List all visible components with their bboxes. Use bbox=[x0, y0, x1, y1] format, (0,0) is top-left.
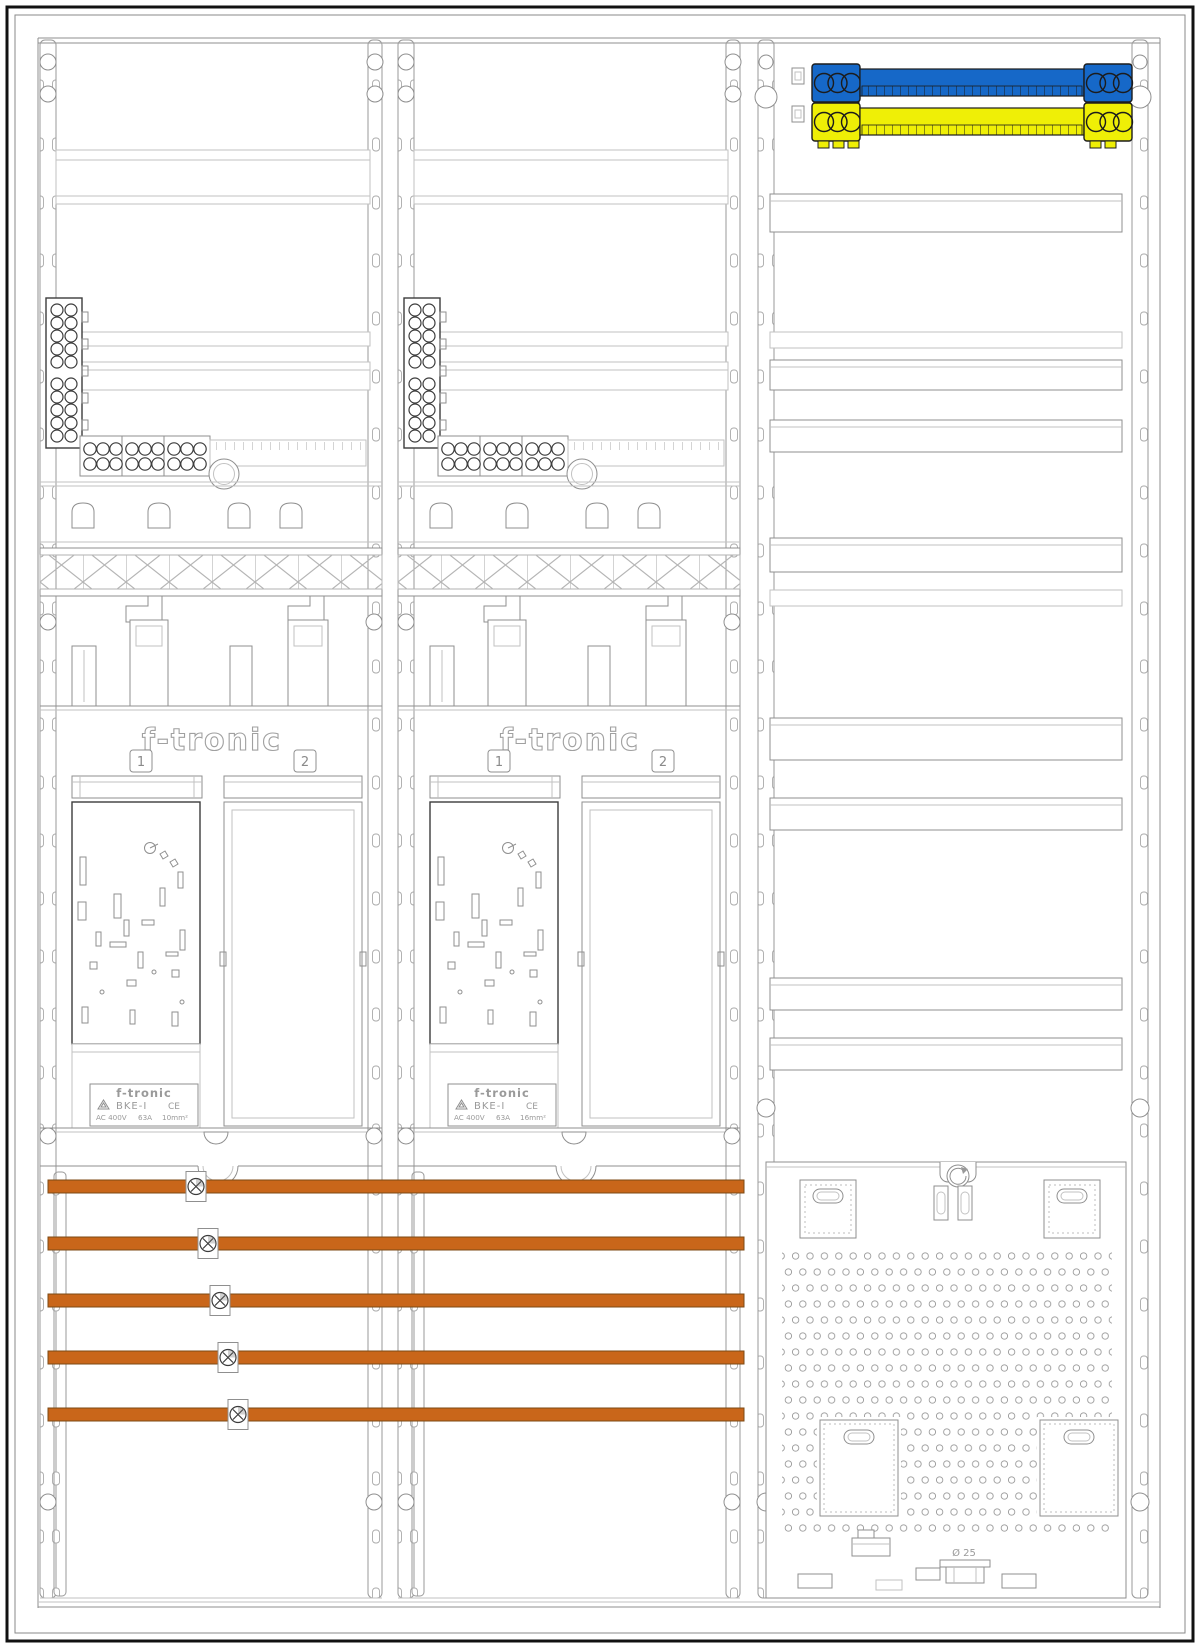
type-label: f-tronic BKE-I CE AC 400V63A16mm² bbox=[448, 1084, 556, 1126]
cable-slot bbox=[958, 1186, 972, 1220]
type-label: f-tronic BKE-I CE AC 400V63A10mm² bbox=[90, 1084, 198, 1126]
knockout-cutout bbox=[817, 1417, 901, 1519]
knockout-cutout bbox=[1037, 1417, 1121, 1519]
rating-line: AC 400V63A10mm² bbox=[96, 1113, 188, 1122]
busbar-clamp bbox=[210, 1286, 230, 1316]
busbar-clamp bbox=[218, 1343, 238, 1373]
svg-text:f-tronic: f-tronic bbox=[116, 1086, 172, 1100]
phase-busbar-2 bbox=[48, 1237, 744, 1250]
phase-busbar-4 bbox=[48, 1351, 744, 1364]
phase-busbar-3 bbox=[48, 1294, 744, 1307]
svg-text:CE: CE bbox=[168, 1102, 180, 1112]
cable-slot bbox=[934, 1186, 948, 1220]
position-1-number: 1 bbox=[137, 755, 145, 770]
mounting-rail-right bbox=[1132, 40, 1148, 1598]
cabinet-drawing-page: f-tronic 1 2 f-tronic BKE-I CE AC 400V63… bbox=[0, 0, 1200, 1648]
knockout-square bbox=[1044, 1180, 1100, 1238]
brand-logo: f-tronic bbox=[142, 723, 282, 758]
position-2-number: 2 bbox=[659, 755, 667, 770]
phase-busbar-1 bbox=[48, 1180, 744, 1193]
knockout-part bbox=[940, 1560, 990, 1583]
diameter-annotation: Ø 25 bbox=[952, 1547, 976, 1559]
busbar-clamp bbox=[228, 1400, 248, 1430]
knockout-square bbox=[800, 1180, 856, 1238]
position-2-number: 2 bbox=[301, 755, 309, 770]
svg-text:f-tronic: f-tronic bbox=[474, 1086, 530, 1100]
svg-text:CE: CE bbox=[526, 1102, 538, 1112]
busbar-clamp bbox=[198, 1229, 218, 1259]
brand-logo: f-tronic bbox=[500, 723, 640, 758]
phase-busbar-5 bbox=[48, 1408, 744, 1421]
busbar-clamp bbox=[186, 1172, 206, 1202]
svg-text:BKE-I: BKE-I bbox=[474, 1101, 505, 1112]
svg-text:BKE-I: BKE-I bbox=[116, 1101, 147, 1112]
position-1-number: 1 bbox=[495, 755, 503, 770]
cabinet-drawing: f-tronic 1 2 f-tronic BKE-I CE AC 400V63… bbox=[0, 0, 1200, 1648]
rating-line: AC 400V63A16mm² bbox=[454, 1113, 546, 1122]
perforated-plate: Ø 25 bbox=[766, 1162, 1126, 1598]
